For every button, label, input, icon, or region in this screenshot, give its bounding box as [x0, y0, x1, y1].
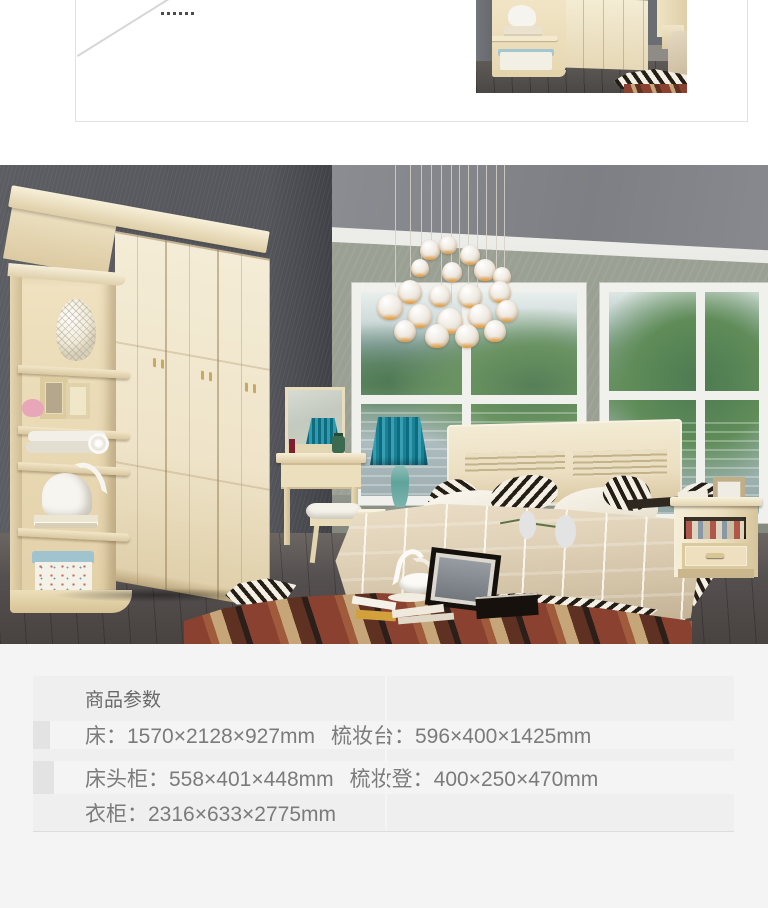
- teal-lamp-body: [391, 465, 409, 509]
- diagonal-line-graphic: [77, 0, 171, 57]
- spec-table: 商品参数 床：1570×2128×927mm 梳妆台：596×400×1425m…: [33, 676, 734, 832]
- thumb-books: [504, 26, 542, 34]
- lamp-dome: [455, 324, 479, 348]
- chandelier: [355, 165, 535, 355]
- thumb-red-carpet: [624, 84, 687, 93]
- lamp-dome: [377, 294, 403, 320]
- lamp-dome: [394, 320, 416, 342]
- stacked-books: [34, 515, 98, 522]
- red-rose: [519, 511, 536, 539]
- rolled-towel: [88, 433, 109, 454]
- ellipsis-dots: [161, 12, 194, 15]
- thumbnail-image: [476, 0, 687, 93]
- column-divider: [385, 676, 387, 831]
- teal-lamp-shade: [370, 417, 428, 465]
- table-leg: [284, 487, 290, 545]
- lamp-dome: [411, 259, 429, 277]
- spec-row-bed: 床：1570×2128×927mm 梳妆台：596×400×1425mm: [33, 721, 50, 749]
- dressing-table-drawer: [281, 463, 361, 489]
- nightstand-plinth: [678, 569, 754, 578]
- spec-stool-dimensions: 梳妆登：400×250×470mm: [334, 763, 599, 793]
- lower-section: 商品参数 床：1570×2128×927mm 梳妆台：596×400×1425m…: [0, 644, 768, 908]
- door-handle: [209, 372, 212, 382]
- spec-dresser-dimensions: 梳妆台：596×400×1425mm: [315, 720, 591, 750]
- dressing-table-top: [276, 453, 366, 463]
- top-panel: [75, 0, 748, 122]
- spec-row-nightstand: 床头柜：558×401×448mm 梳妆登：400×250×470mm: [33, 761, 54, 794]
- spec-table-header-row: 商品参数: [33, 676, 734, 721]
- thumb-shelf-board: [492, 36, 558, 41]
- thumb-storage-box: [500, 52, 552, 70]
- lamp-dome: [484, 320, 506, 342]
- lamp-dome: [439, 236, 457, 254]
- green-jar: [332, 436, 345, 453]
- white-vase: [56, 299, 96, 361]
- thumb-wardrobe: [564, 0, 648, 70]
- door-handle: [153, 358, 156, 368]
- window-mullion: [600, 391, 768, 400]
- thumb-corner-shelf: [492, 0, 566, 75]
- door-handle: [245, 382, 248, 392]
- door-handle: [161, 359, 164, 369]
- door-handle: [253, 384, 256, 394]
- drawer-handle: [706, 553, 724, 558]
- corner-shelf-unit: [10, 261, 132, 613]
- headboard-slats: [465, 451, 565, 474]
- white-dish: [388, 593, 430, 602]
- lamp-dome: [425, 324, 449, 348]
- wardrobe-doors: [115, 231, 270, 609]
- spec-nightstand-dimensions: 床头柜：558×401×448mm: [33, 763, 334, 793]
- spec-wardrobe-dimensions: 衣柜：2316×633×2775mm: [33, 798, 385, 828]
- spec-row-wardrobe: 衣柜：2316×633×2775mm: [33, 794, 734, 831]
- spec-table-title: 商品参数: [33, 685, 385, 712]
- photo-frame: [40, 377, 68, 419]
- spec-bed-dimensions: 床：1570×2128×927mm: [33, 720, 315, 750]
- headboard-slats: [573, 449, 667, 477]
- shelf-side-rail: [10, 269, 22, 609]
- nightstand-books: [686, 521, 744, 539]
- lamp-dome: [429, 285, 451, 307]
- photo-frame: [66, 383, 90, 419]
- perfume-bottle: [289, 439, 295, 453]
- door-handle: [201, 370, 204, 380]
- lamp-dome: [398, 280, 422, 304]
- thumb-shelf-base: [492, 70, 566, 77]
- spec-row-spacer: [33, 749, 734, 761]
- wardrobe: [10, 181, 276, 601]
- red-rose: [555, 515, 576, 548]
- lamp-dome: [442, 262, 462, 282]
- bedroom-photo: [0, 165, 768, 644]
- thumb-cat-figurine: [508, 5, 536, 27]
- lamp-dome: [420, 240, 440, 260]
- piggy-figurine: [22, 399, 44, 417]
- lamp-dome: [496, 300, 518, 322]
- nightstand-top: [670, 497, 762, 506]
- black-tray: [475, 593, 538, 619]
